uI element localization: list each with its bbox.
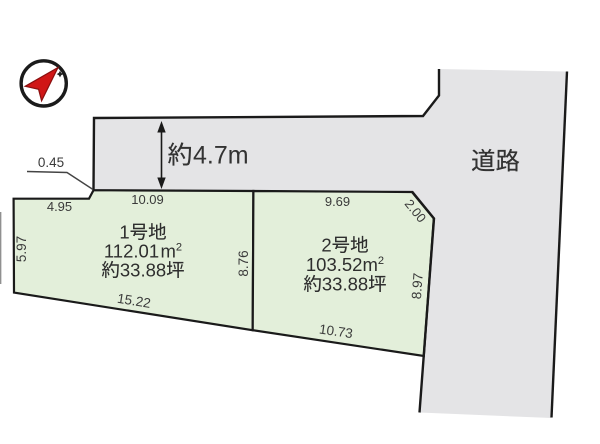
svg-text:9.69: 9.69 bbox=[325, 194, 350, 209]
svg-text:m: m bbox=[363, 254, 378, 275]
svg-text:5.97: 5.97 bbox=[14, 236, 29, 262]
svg-text:0.45: 0.45 bbox=[38, 155, 64, 170]
svg-text:m: m bbox=[161, 241, 176, 262]
svg-text:33.88: 33.88 bbox=[322, 274, 368, 295]
svg-text:8.97: 8.97 bbox=[409, 272, 426, 299]
svg-text:2: 2 bbox=[176, 242, 182, 254]
svg-text:2: 2 bbox=[321, 235, 331, 256]
svg-text:10.09: 10.09 bbox=[131, 192, 164, 207]
svg-text:4.7m: 4.7m bbox=[193, 142, 249, 170]
svg-text:112.01: 112.01 bbox=[104, 241, 159, 262]
svg-text:1: 1 bbox=[119, 222, 129, 243]
svg-text:2: 2 bbox=[378, 255, 384, 267]
svg-text:8.76: 8.76 bbox=[236, 250, 251, 276]
svg-text:33.88: 33.88 bbox=[120, 260, 166, 281]
svg-text:4.95: 4.95 bbox=[47, 199, 72, 214]
svg-text:103.52: 103.52 bbox=[306, 254, 363, 275]
